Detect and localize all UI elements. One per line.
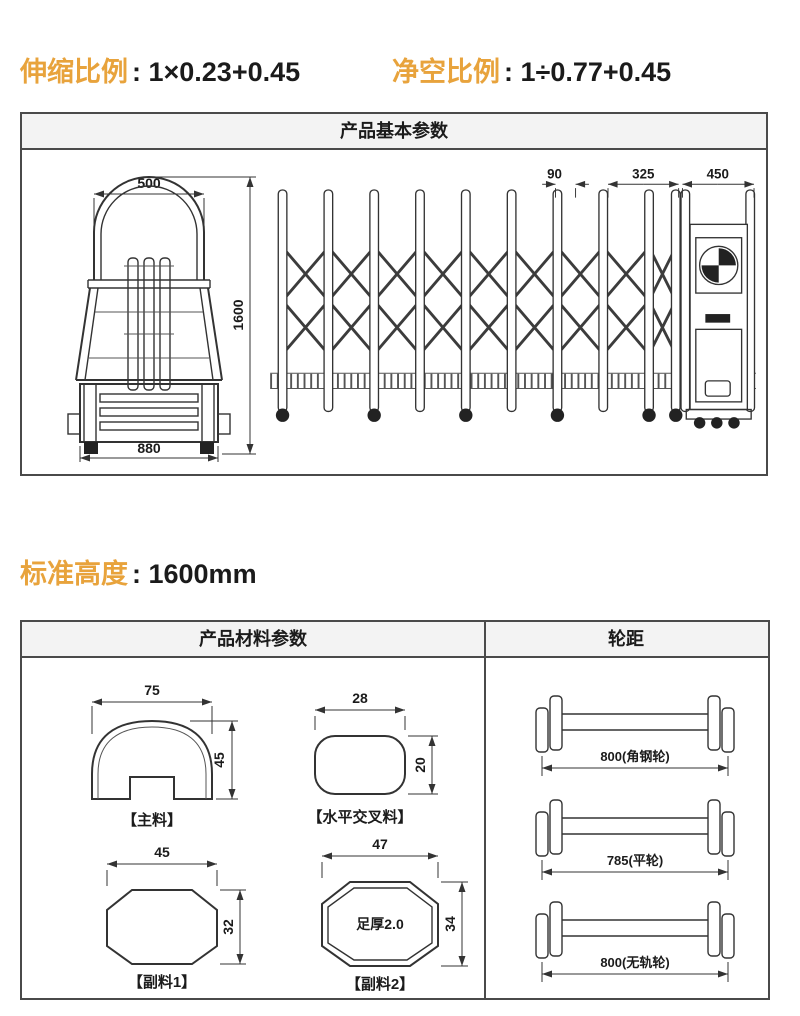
wheel-track-caption-1: 800(角钢轮)	[600, 749, 669, 764]
wheel-track-title: 轮距	[484, 622, 768, 656]
column-divider	[484, 622, 486, 998]
material-params-box: 产品材料参数 轮距 75 45 【主料】 28 20 【水平交叉料】	[20, 620, 770, 1000]
dim-rear-span: 325	[632, 167, 655, 182]
stretch-ratio-label: 伸缩比例	[20, 57, 128, 87]
dim-front-height: 1600	[230, 299, 246, 330]
stretch-ratio-value: : 1×0.23+0.45	[132, 57, 300, 87]
gate-posts	[278, 190, 754, 411]
clear-ratio: 净空比例: 1÷0.77+0.45	[392, 50, 671, 89]
dim-profile-crossbar-width: 28	[352, 690, 368, 706]
basic-params-title: 产品基本参数	[22, 114, 766, 150]
clear-ratio-label: 净空比例	[392, 57, 500, 87]
dim-front-base-width: 880	[137, 440, 161, 456]
profile-aux2-drawing: 足厚2.0 47 34 【副料2】	[280, 834, 480, 999]
wheel-track-caption-3: 800(无轨轮)	[600, 955, 669, 970]
dim-profile-crossbar-height: 20	[412, 757, 428, 773]
wheel-track-drawing-3: 800(无轨轮)	[510, 884, 760, 989]
clear-ratio-value: : 1÷0.77+0.45	[504, 57, 671, 87]
wheel-track-drawing-1: 800(角钢轮)	[510, 678, 760, 783]
motor-box	[686, 224, 751, 428]
dim-profile-aux1-width: 45	[154, 844, 170, 860]
standard-height-label: 标准高度	[20, 559, 128, 589]
dim-profile-aux1-height: 32	[220, 919, 236, 935]
profile-main-label: 【主料】	[122, 811, 182, 829]
stretch-ratio: 伸缩比例: 1×0.23+0.45	[20, 50, 300, 89]
front-base-width-dim: 880	[80, 440, 218, 462]
standard-height-value: : 1600mm	[132, 559, 257, 589]
wheel-track-drawing-2: 785(平轮)	[510, 782, 760, 887]
wheel-track-caption-2: 785(平轮)	[607, 853, 663, 868]
profile-main-drawing: 75 45 【主料】	[52, 674, 257, 834]
profile-aux2-label: 【副料2】	[346, 975, 414, 993]
profile-aux1-drawing: 45 32 【副料1】	[62, 838, 267, 996]
side-view-drawing: 90 325 450	[268, 169, 760, 441]
dim-profile-aux2-height: 34	[442, 916, 458, 932]
dim-motor-box-width: 450	[707, 167, 729, 182]
gate-wheels	[276, 409, 683, 422]
profile-crossbar-drawing: 28 20 【水平交叉料】	[280, 676, 450, 834]
standard-height: 标准高度: 1600mm	[20, 552, 257, 591]
dim-post-pitch: 90	[547, 167, 562, 182]
dim-profile-main-width: 75	[144, 682, 160, 698]
front-top-width-dim: 500	[94, 175, 204, 226]
dim-profile-main-height: 45	[211, 752, 227, 768]
material-params-title: 产品材料参数	[22, 622, 484, 656]
front-view-drawing: 500 1600	[54, 162, 269, 462]
dim-profile-aux2-width: 47	[372, 836, 388, 852]
profile-aux2-note: 足厚2.0	[356, 916, 404, 932]
profile-crossbar-label: 【水平交叉料】	[307, 808, 412, 826]
profile-aux1-label: 【副料1】	[128, 973, 196, 991]
basic-params-box: 产品基本参数 500	[20, 112, 768, 476]
